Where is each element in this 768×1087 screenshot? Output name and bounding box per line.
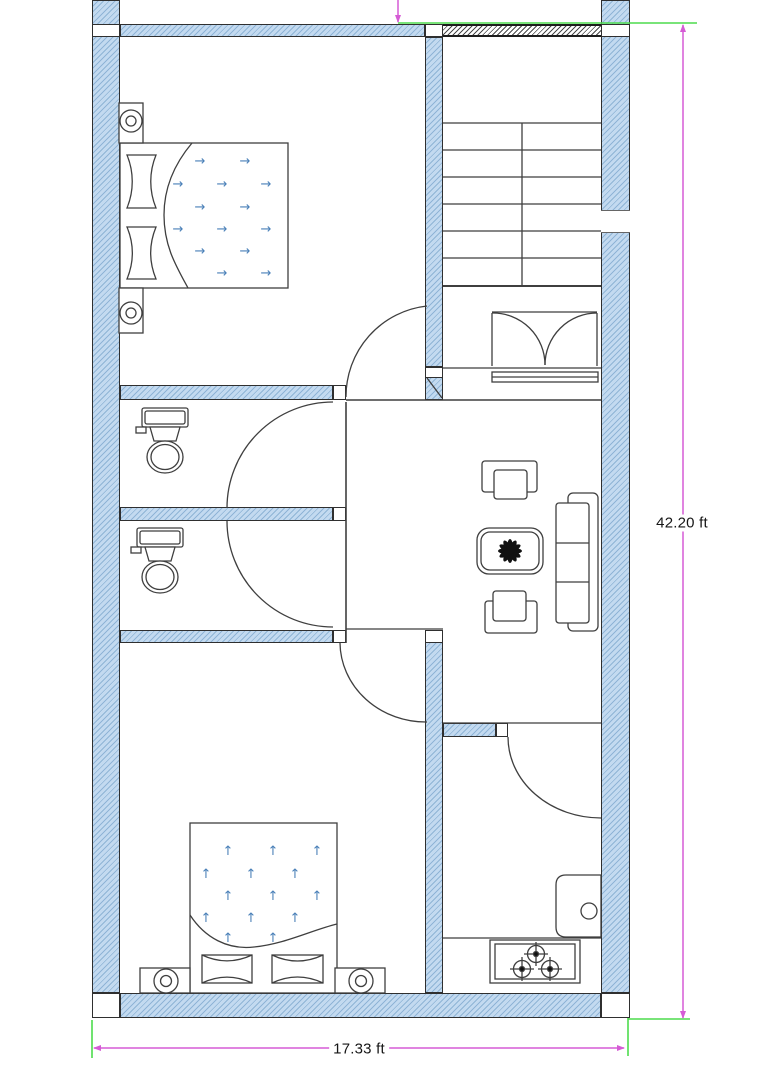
blanket-arrow-icon: ↑ bbox=[312, 844, 323, 859]
toilet-2 bbox=[131, 528, 183, 593]
blanket-arrow-icon: ↑ bbox=[223, 889, 234, 904]
blanket-arrow-icon: ↑ bbox=[223, 844, 234, 859]
blanket-arrow-icon: → bbox=[195, 154, 206, 169]
blanket-arrow-icon: → bbox=[173, 177, 184, 192]
blanket-arrow-icon: → bbox=[261, 222, 272, 237]
blanket-arrow-icon: ↑ bbox=[246, 867, 257, 882]
partition-lines bbox=[346, 368, 601, 938]
blanket-arrow-icon: → bbox=[240, 154, 251, 169]
bedroom1-door-arc bbox=[346, 306, 427, 397]
faucet-icon bbox=[581, 903, 597, 919]
door-arc-left-leaf bbox=[492, 313, 545, 365]
height-dimension-label: 42.20 ft bbox=[652, 515, 712, 532]
blanket-arrow-icon: → bbox=[195, 244, 206, 259]
wall-stub-diagonal bbox=[427, 378, 442, 398]
blanket-arrow-icon: → bbox=[240, 200, 251, 215]
sofa-cushions bbox=[556, 503, 589, 623]
blanket-arrow-icon: ↑ bbox=[290, 867, 301, 882]
blanket-arrow-icon: → bbox=[240, 244, 251, 259]
door-arc-right-leaf bbox=[545, 313, 597, 365]
sofa bbox=[556, 493, 598, 631]
blanket-arrow-icon: → bbox=[217, 177, 228, 192]
flush-button bbox=[136, 427, 146, 433]
blanket-arrow-icon: → bbox=[173, 222, 184, 237]
bathroom2-door-arc bbox=[227, 521, 333, 627]
plan-linework: →→→→→→→→→→→→→→ ↑↑↑↑↑↑↑↑↑↑↑↑↑↑ bbox=[0, 0, 768, 1087]
width-dimension-label: 17.33 ft bbox=[329, 1041, 389, 1058]
staircase bbox=[443, 123, 601, 286]
pillow bbox=[272, 955, 323, 983]
blanket-arrow-icon: ↑ bbox=[268, 889, 279, 904]
armchair-bottom bbox=[485, 591, 537, 633]
blanket-arrow-icon: ↑ bbox=[201, 911, 212, 926]
blanket-arrow-icon: → bbox=[217, 222, 228, 237]
armchair-top bbox=[482, 461, 537, 499]
stove bbox=[490, 940, 580, 983]
bathroom1-door-arc bbox=[227, 402, 333, 508]
blanket-arrow-icon: → bbox=[261, 177, 272, 192]
flush-button bbox=[131, 547, 141, 553]
double-entry-door bbox=[492, 312, 598, 382]
blanket-arrow-icon: ↑ bbox=[201, 867, 212, 882]
blanket-arrow-icon: ↑ bbox=[223, 931, 234, 946]
floor-plan-canvas: →→→→→→→→→→→→→→ ↑↑↑↑↑↑↑↑↑↑↑↑↑↑ 42.20 bbox=[0, 0, 768, 1087]
nightstand-top-2 bbox=[119, 288, 143, 333]
toilet-1 bbox=[136, 408, 188, 473]
kitchen-door-arc bbox=[508, 737, 601, 818]
sink bbox=[556, 875, 601, 937]
blanket-arrow-icon: ↑ bbox=[312, 889, 323, 904]
nightstand-top-1 bbox=[119, 103, 143, 143]
blanket-arrow-icon: → bbox=[195, 200, 206, 215]
blanket-arrow-icon: ↑ bbox=[268, 931, 279, 946]
blanket-arrow-icon: → bbox=[217, 266, 228, 281]
pillow bbox=[202, 955, 252, 983]
nightstand-bottom-1 bbox=[140, 968, 190, 993]
blanket-arrow-icon: → bbox=[261, 266, 272, 281]
nightstand-bottom-2 bbox=[335, 968, 385, 993]
bedroom2-door-arc bbox=[340, 643, 427, 722]
blanket-arrow-icon: ↑ bbox=[268, 844, 279, 859]
blanket-arrow-icon: ↑ bbox=[290, 911, 301, 926]
blanket-arrow-icon: ↑ bbox=[246, 911, 257, 926]
